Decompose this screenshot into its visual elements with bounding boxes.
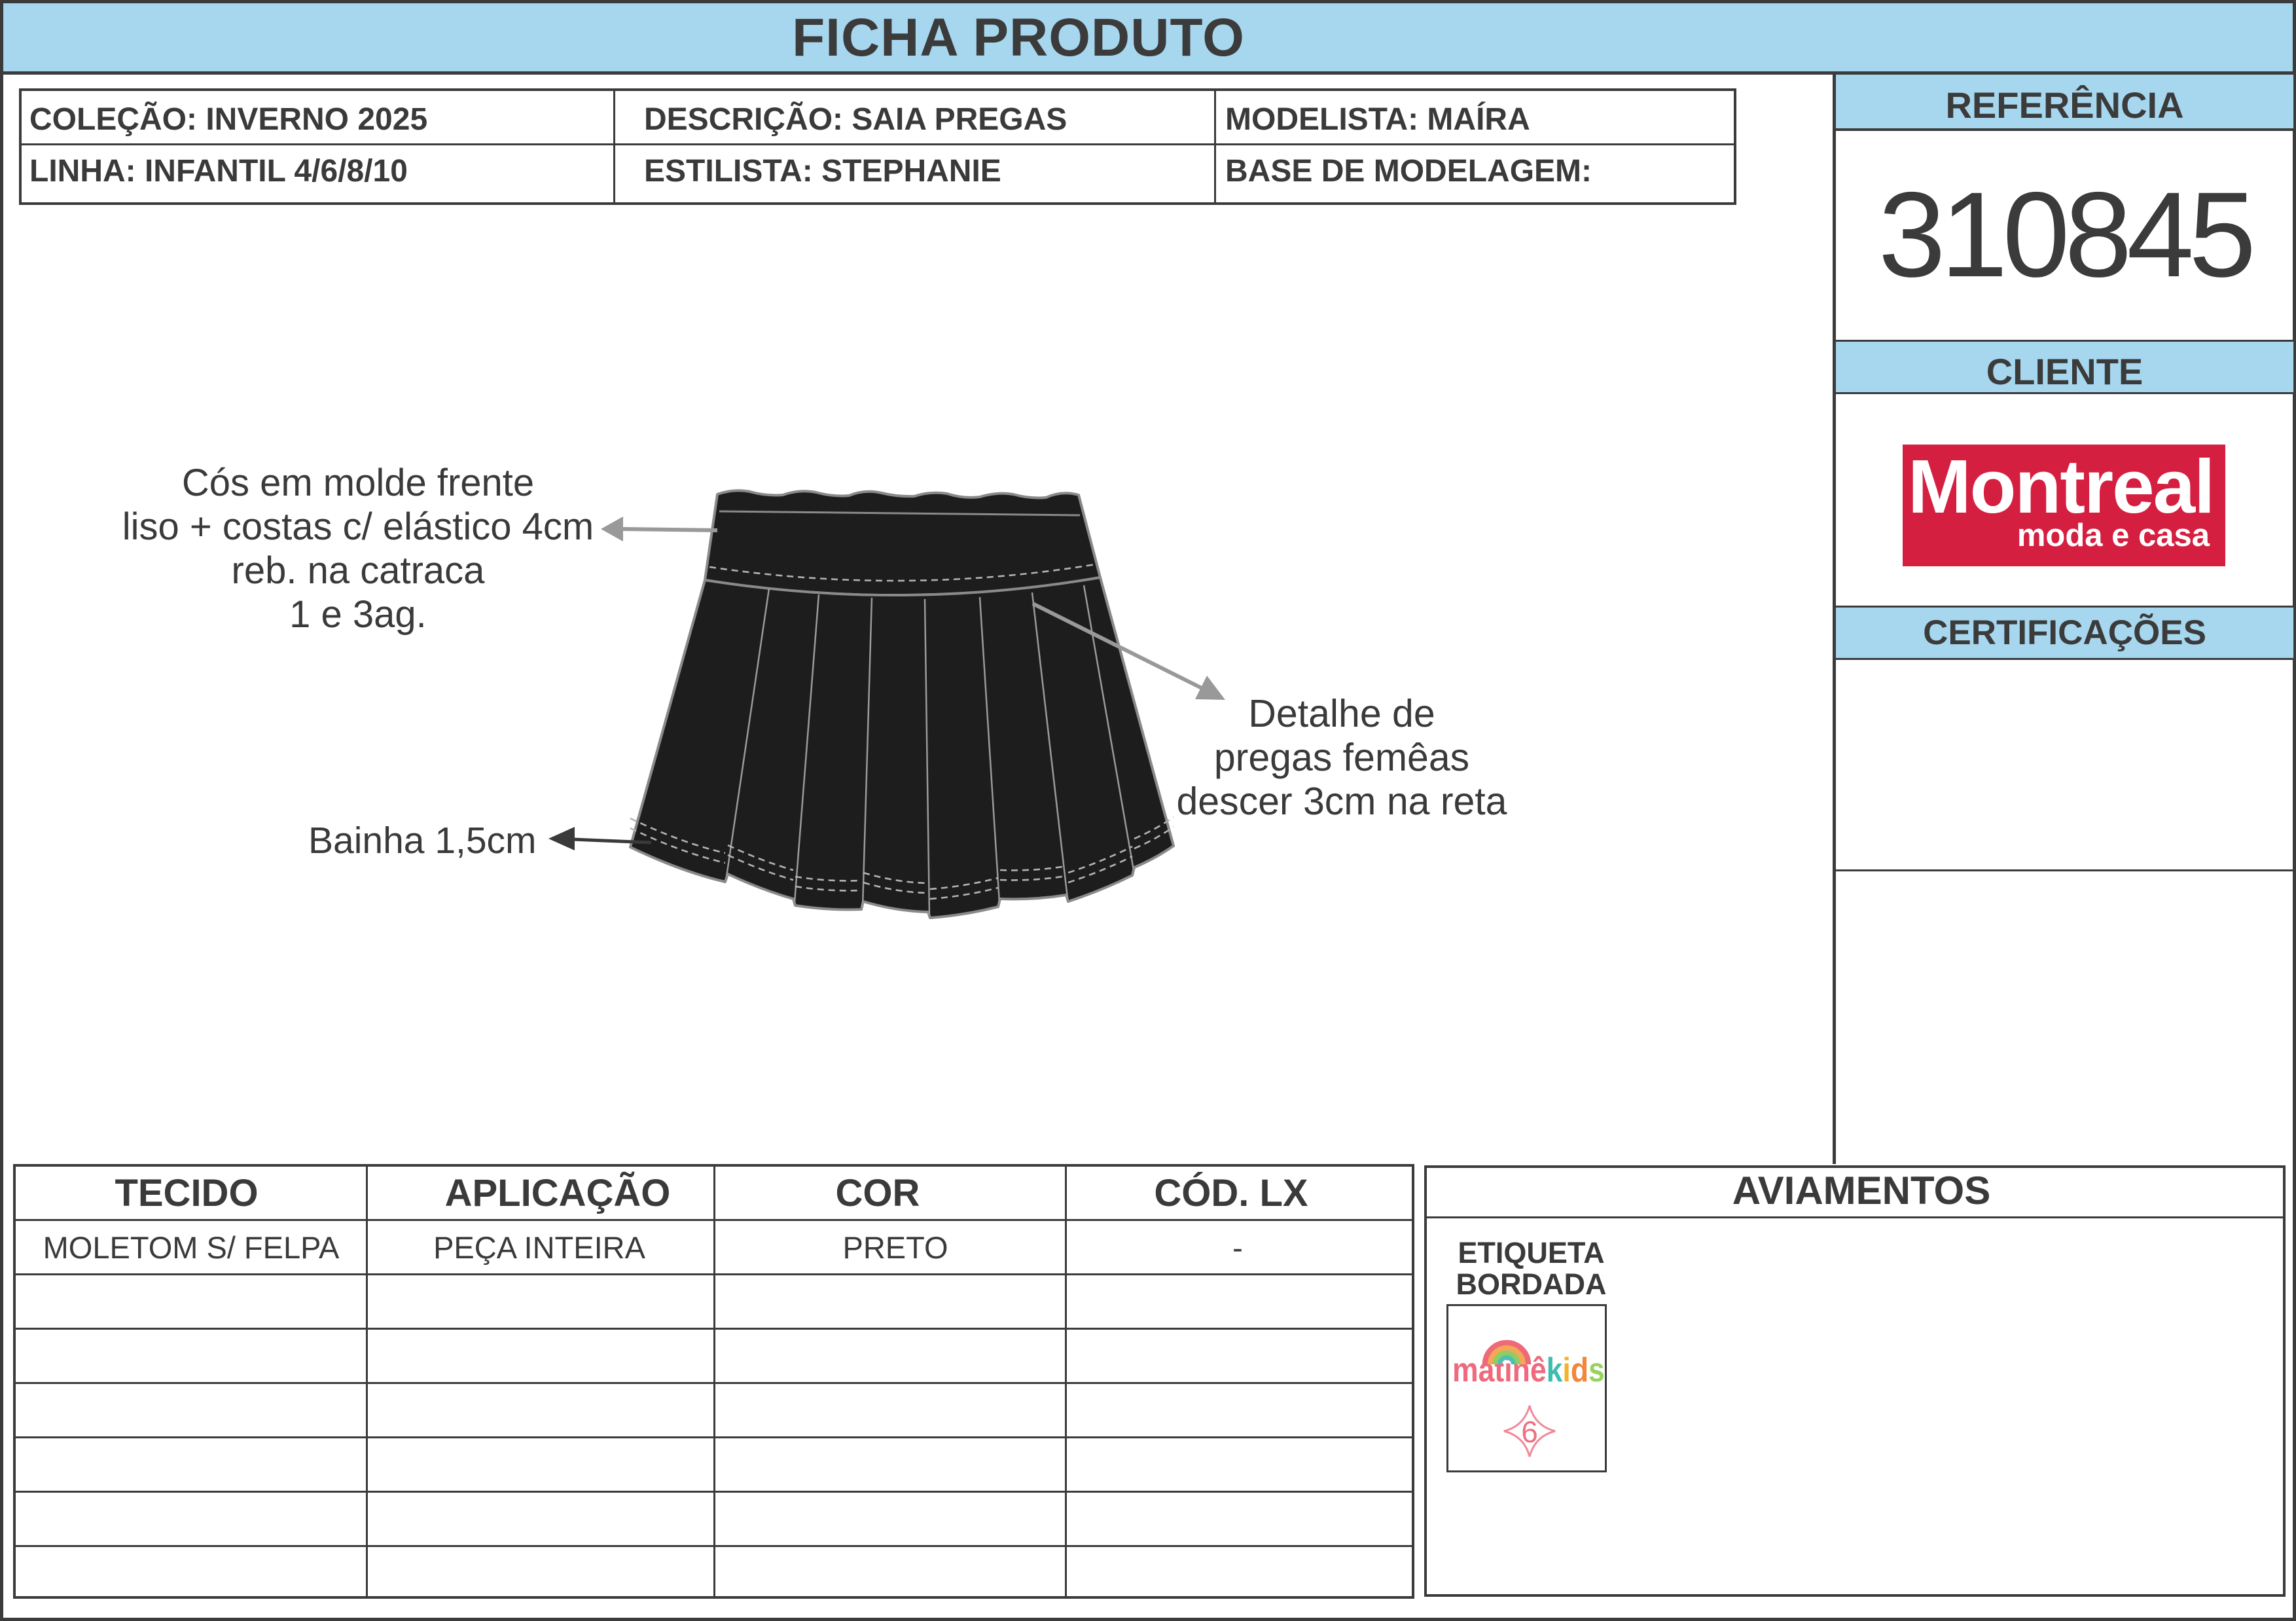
svg-text:6: 6: [1521, 1415, 1538, 1449]
